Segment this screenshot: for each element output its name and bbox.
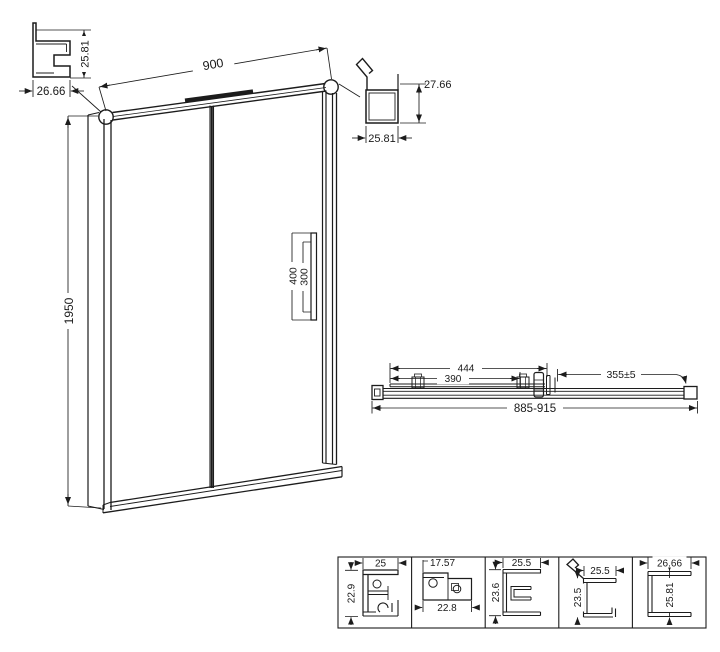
section3-height-label: 23.6 xyxy=(491,582,502,602)
profile-section-2: 17.57 22.8 xyxy=(415,558,480,614)
rail-profile-inner xyxy=(369,93,395,120)
section1-height-label: 22.9 xyxy=(347,583,358,603)
door-frame xyxy=(88,80,342,513)
section3-width-label: 25.5 xyxy=(512,558,532,569)
section4-height-dimension: 23.5 xyxy=(571,571,584,625)
wall-profile-detail: 26.66 25.81 xyxy=(19,23,101,112)
rail-profile-outline xyxy=(366,90,398,123)
top-right-corner-knob xyxy=(324,80,338,94)
door-height-label: 1950 xyxy=(62,297,76,324)
door-handle: 400 300 xyxy=(286,233,317,320)
profile-section-1: 25 22.9 xyxy=(345,558,407,625)
profile-section-3: 25.5 23.6 xyxy=(489,558,548,624)
plan-inner-width-label: 390 xyxy=(445,374,462,385)
door-elevation: 900 1950 xyxy=(61,48,343,513)
shower-door-technical-drawing: 26.66 25.81 27.66 xyxy=(0,0,720,652)
plan-clearance-dimension: 355±5 xyxy=(558,368,687,384)
wall-profile-outline xyxy=(33,23,70,77)
plan-clearance-label: 355±5 xyxy=(606,369,635,381)
roller-bracket xyxy=(534,373,544,398)
rail-profile-width-dimension: 25.81 xyxy=(352,126,412,145)
plan-inner-width-dimension: 390 xyxy=(390,372,520,387)
rail-profile-height-dimension: 27.66 xyxy=(400,79,452,123)
wall-profile-height-label: 25.81 xyxy=(80,40,92,68)
section2-width-label: 17.57 xyxy=(430,558,455,569)
handle-bar xyxy=(311,233,317,320)
door-width-dimension: 900 xyxy=(99,48,332,111)
wall-profile-width-dimension: 26.66 xyxy=(19,80,84,98)
plan-right-end-cap xyxy=(684,387,697,400)
wall-profile-leader-line xyxy=(72,86,101,112)
plan-overall-width-dimension: 885-915 xyxy=(372,401,698,415)
section1-width-dimension: 25 xyxy=(355,558,406,570)
profile-section-4: 25.5 23.5 xyxy=(567,559,623,625)
plan-glass-width-label: 444 xyxy=(458,364,475,375)
technical-drawing-page: 26.66 25.81 27.66 xyxy=(0,0,720,652)
wall-profile-height-dimension: 25.81 xyxy=(36,30,92,78)
section4-height-label: 23.5 xyxy=(573,587,584,607)
glass-clamp xyxy=(517,374,529,388)
section2-height-dimension: 22.8 xyxy=(415,601,480,614)
door-width-label: 900 xyxy=(202,56,225,73)
section4-hook xyxy=(567,559,584,579)
glass-clamp xyxy=(412,374,424,388)
rail-profile-width-label: 25.81 xyxy=(368,133,396,145)
profile-section-5: 25.81 26.66 xyxy=(640,557,699,626)
wall-profile-width-label: 26.66 xyxy=(37,86,66,98)
top-left-corner-knob xyxy=(99,110,113,124)
wall-profile-inner-lines xyxy=(36,44,67,73)
rail-profile-height-label: 27.66 xyxy=(424,79,452,91)
profile-sections-strip: 25 22.9 17.57 xyxy=(338,557,706,629)
section5-width-label: 26.66 xyxy=(657,559,682,570)
section2-width-dimension: 17.57 xyxy=(423,558,455,572)
door-height-dimension: 1950 xyxy=(61,116,102,508)
section1-width-label: 25 xyxy=(375,559,387,570)
plan-view: 444 390 355±5 885-915 xyxy=(372,362,698,415)
plan-overall-width-label: 885-915 xyxy=(514,403,556,415)
section3-width-dimension: 25.5 xyxy=(495,558,548,569)
plan-fixed-glass xyxy=(390,373,555,398)
rail-profile-leader-line xyxy=(339,84,360,97)
section4-width-dimension: 25.5 xyxy=(577,566,623,577)
section3-height-dimension: 23.6 xyxy=(489,562,502,625)
plan-left-end-cap xyxy=(372,386,383,400)
section2-height-label: 22.8 xyxy=(437,603,457,614)
handle-spacing-label: 300 xyxy=(299,268,311,286)
section5-height-label: 25.81 xyxy=(665,582,676,607)
section1-height-dimension: 22.9 xyxy=(345,562,359,625)
section5-width-dimension: 26.66 xyxy=(640,557,699,570)
section4-width-label: 25.5 xyxy=(590,566,610,577)
rail-profile-hook xyxy=(357,59,373,91)
top-rail-profile-detail: 27.66 25.81 xyxy=(339,59,452,146)
handle-spacing-dimension: 300 xyxy=(297,242,312,312)
